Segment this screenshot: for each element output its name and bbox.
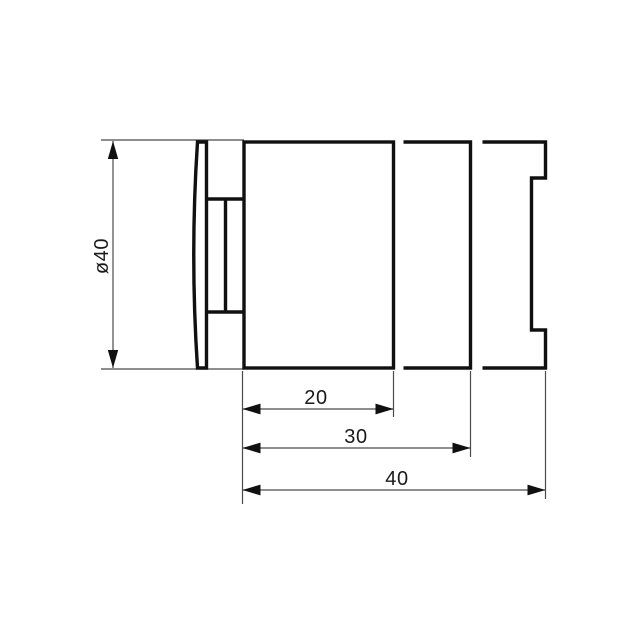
dimension-label-group: ø40 20 30 40 — [91, 238, 409, 490]
dimension-line-group — [101, 140, 546, 504]
knob-front-profile — [194, 142, 207, 368]
arrowhead-group — [108, 141, 546, 495]
diameter-dimension-label: ø40 — [91, 238, 113, 274]
body-section-40mm — [483, 142, 546, 368]
body-section-20mm — [244, 142, 394, 368]
arrow-left-30-icon — [243, 443, 261, 454]
body-section-30mm — [404, 142, 471, 368]
arrow-right-30-icon — [453, 443, 471, 454]
arrow-right-40-icon — [528, 485, 546, 496]
arrow-right-20-icon — [376, 404, 394, 415]
arrow-down-icon — [108, 350, 118, 368]
depth-30-dimension-label: 30 — [344, 426, 367, 448]
depth-20-dimension-label: 20 — [304, 387, 327, 409]
arrow-left-20-icon — [243, 404, 261, 415]
arrow-up-icon — [108, 141, 118, 159]
drawing-canvas: ø40 20 30 40 — [0, 0, 640, 640]
arrow-left-40-icon — [243, 485, 261, 496]
depth-40-dimension-label: 40 — [385, 468, 408, 490]
part-outline-group — [194, 142, 546, 368]
knob-collar — [207, 199, 245, 312]
technical-dimension-drawing: ø40 20 30 40 — [0, 0, 640, 640]
